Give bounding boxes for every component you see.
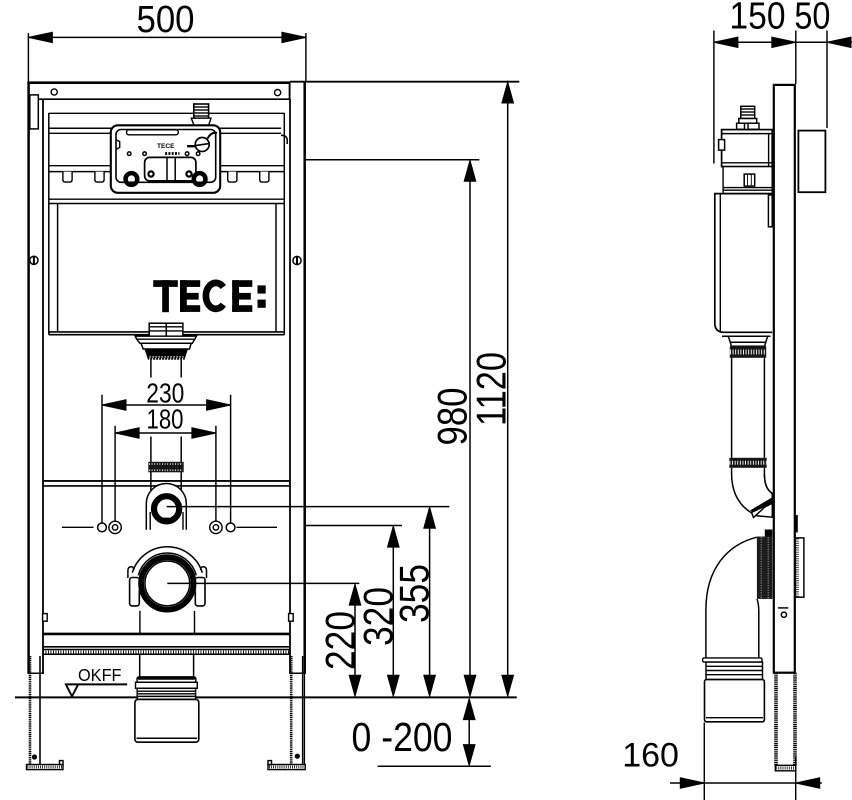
svg-text:180: 180 <box>147 404 184 435</box>
svg-text:0 -200: 0 -200 <box>352 714 453 760</box>
svg-text:160: 160 <box>622 737 679 775</box>
svg-text:50: 50 <box>794 0 830 37</box>
svg-text:500: 500 <box>137 0 195 41</box>
svg-text:OKFF: OKFF <box>78 665 122 685</box>
svg-text:355: 355 <box>390 564 437 623</box>
svg-text:1120: 1120 <box>467 352 514 426</box>
svg-text:TECE: TECE <box>157 143 175 150</box>
svg-text:150: 150 <box>730 0 786 37</box>
